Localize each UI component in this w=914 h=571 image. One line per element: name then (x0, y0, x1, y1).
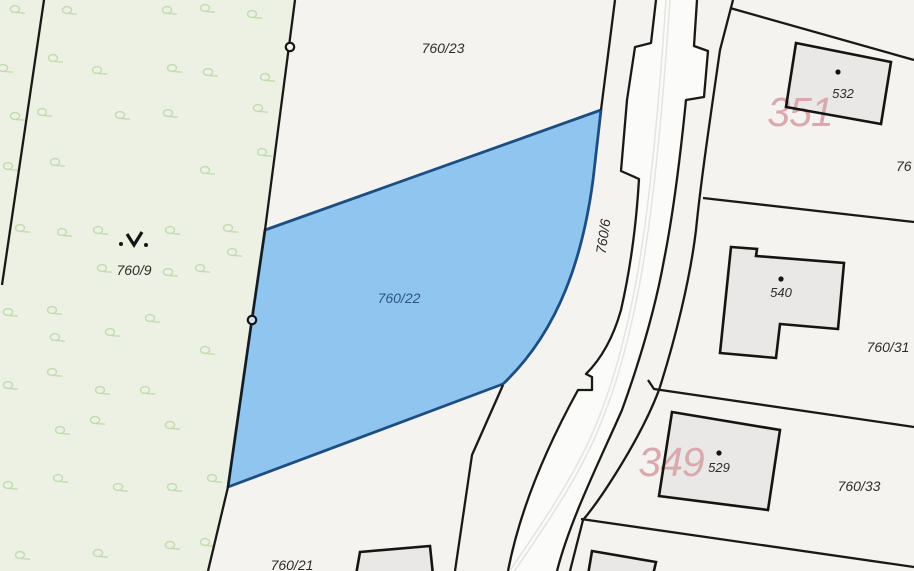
map-svg[interactable]: 351 349 (0, 0, 914, 571)
parcel-label-760-9: 760/9 (116, 262, 151, 278)
parcel-label-edge-cut: 76 (896, 158, 912, 174)
building-532-dot (835, 69, 840, 74)
map-sheet-label-351: 351 (767, 89, 832, 135)
boundary-point-marker-left (248, 316, 256, 324)
building-label-540: 540 (770, 285, 792, 300)
parcel-label-760-22: 760/22 (378, 290, 421, 306)
building-label-529: 529 (708, 460, 730, 475)
building-540-dot (778, 276, 783, 281)
building-529-dot (716, 450, 721, 455)
boundary-point-marker-top (286, 43, 294, 51)
map-sheet-label-349: 349 (638, 439, 704, 485)
parcel-label-760-33: 760/33 (838, 478, 881, 494)
cadastral-map-canvas[interactable]: 351 349 (0, 0, 914, 571)
building-label-532: 532 (832, 86, 854, 101)
parcel-label-760-23: 760/23 (422, 40, 465, 56)
parcel-label-760-21: 760/21 (271, 557, 314, 571)
parcel-label-760-31: 760/31 (867, 339, 910, 355)
